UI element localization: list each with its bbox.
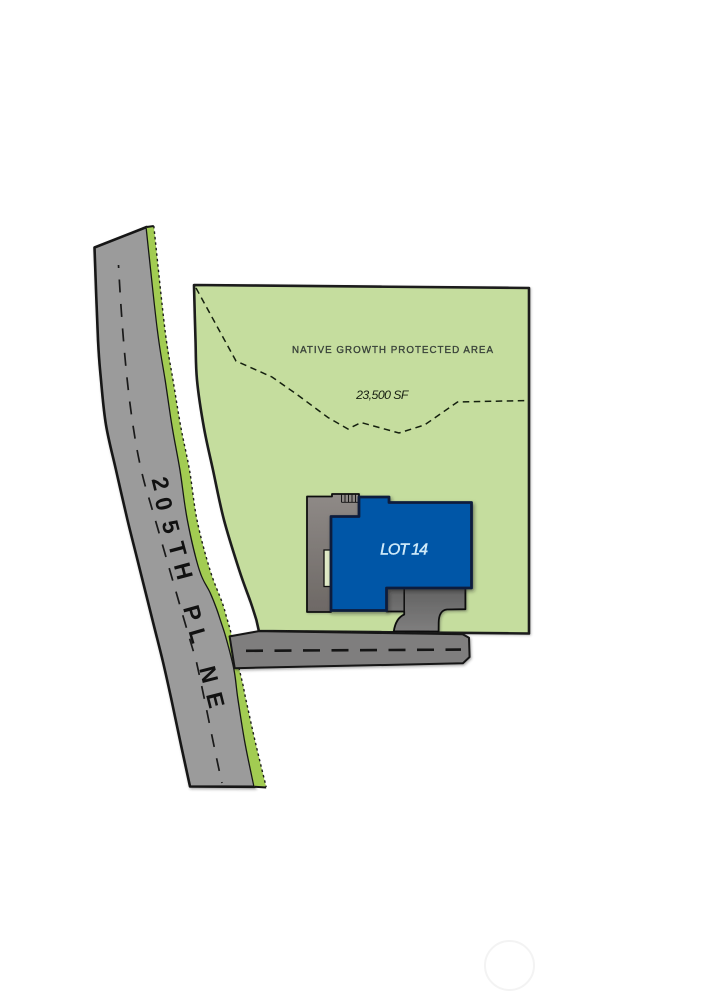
svg-text:LOT 14: LOT 14: [380, 542, 428, 559]
svg-text:23,500 SF: 23,500 SF: [355, 388, 410, 402]
svg-text:NATIVE GROWTH PROTECTED AREA: NATIVE GROWTH PROTECTED AREA: [292, 345, 494, 356]
